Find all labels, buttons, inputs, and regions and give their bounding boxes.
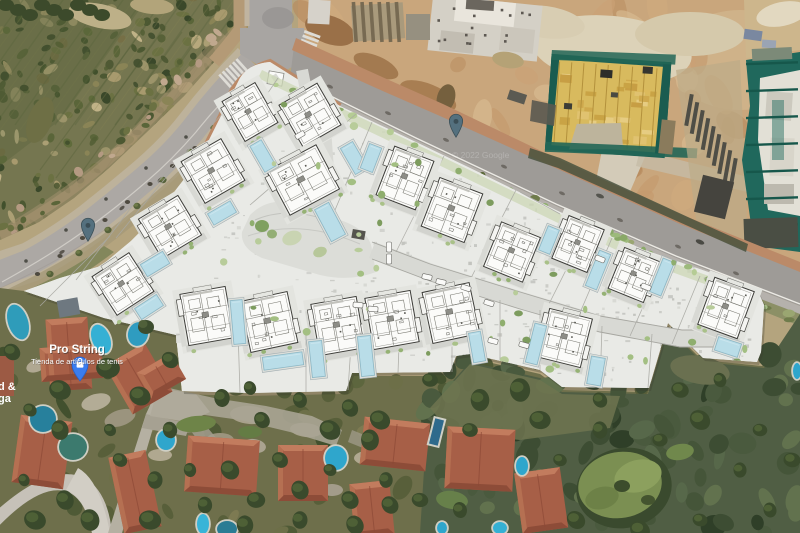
svg-text:Pro String: Pro String: [49, 344, 105, 356]
svg-text:ga: ga: [0, 393, 12, 405]
svg-text:d &: d &: [0, 381, 16, 393]
svg-text:Tienda de artículos de tenis: Tienda de artículos de tenis: [31, 357, 123, 366]
svg-text:© 2022 Google: © 2022 Google: [452, 150, 510, 160]
